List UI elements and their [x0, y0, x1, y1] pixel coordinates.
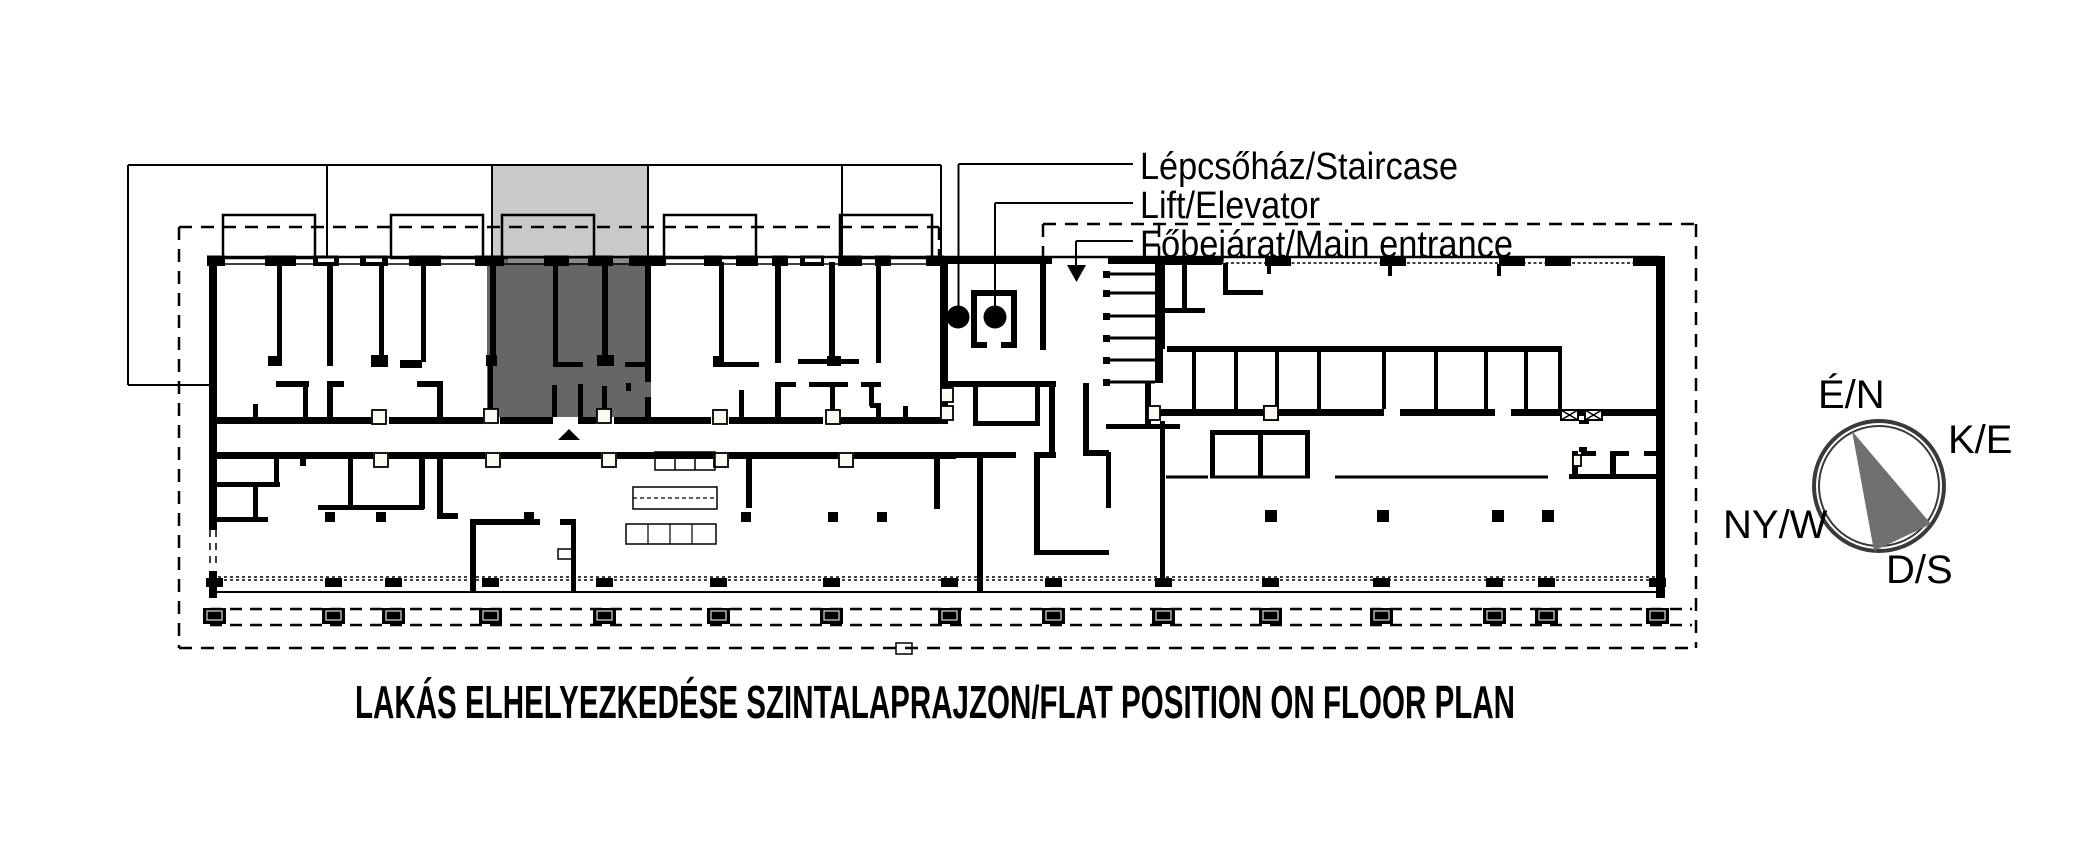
svg-text:LAKÁS ELHELYEZKEDÉSE SZINTALAP: LAKÁS ELHELYEZKEDÉSE SZINTALAPRAJZON/FLA…: [355, 676, 1515, 728]
svg-text:Főbejárat/Main entrance: Főbejárat/Main entrance: [1140, 224, 1513, 266]
svg-text:É/N: É/N: [1818, 372, 1885, 417]
svg-text:NY/W: NY/W: [1723, 503, 1828, 547]
svg-text:K/E: K/E: [1948, 418, 2012, 462]
svg-text:Lift/Elevator: Lift/Elevator: [1140, 185, 1320, 227]
svg-text:Lépcsőház/Staircase: Lépcsőház/Staircase: [1140, 146, 1458, 188]
svg-text:D/S: D/S: [1886, 548, 1953, 592]
